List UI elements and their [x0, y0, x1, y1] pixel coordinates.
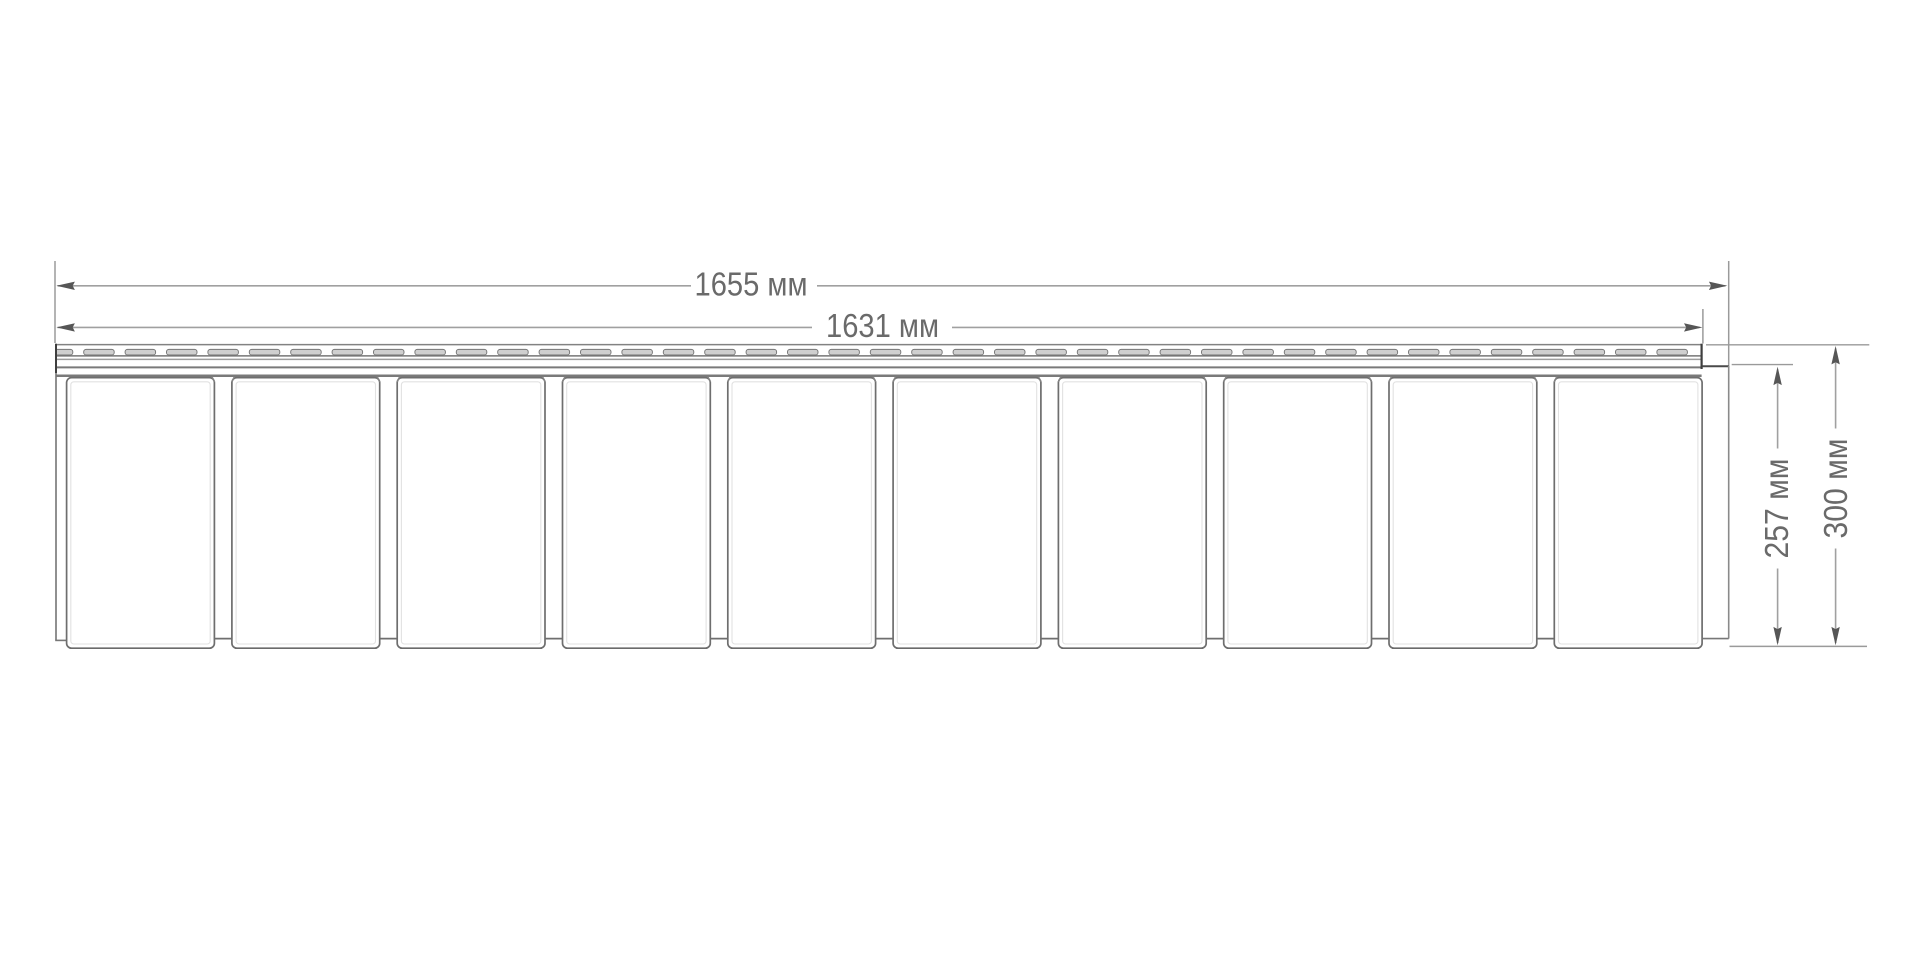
svg-text:1655 мм: 1655 мм — [695, 267, 808, 304]
svg-text:1631 мм: 1631 мм — [826, 308, 939, 345]
svg-text:257 мм: 257 мм — [1759, 459, 1796, 559]
svg-text:300 мм: 300 мм — [1818, 439, 1855, 539]
